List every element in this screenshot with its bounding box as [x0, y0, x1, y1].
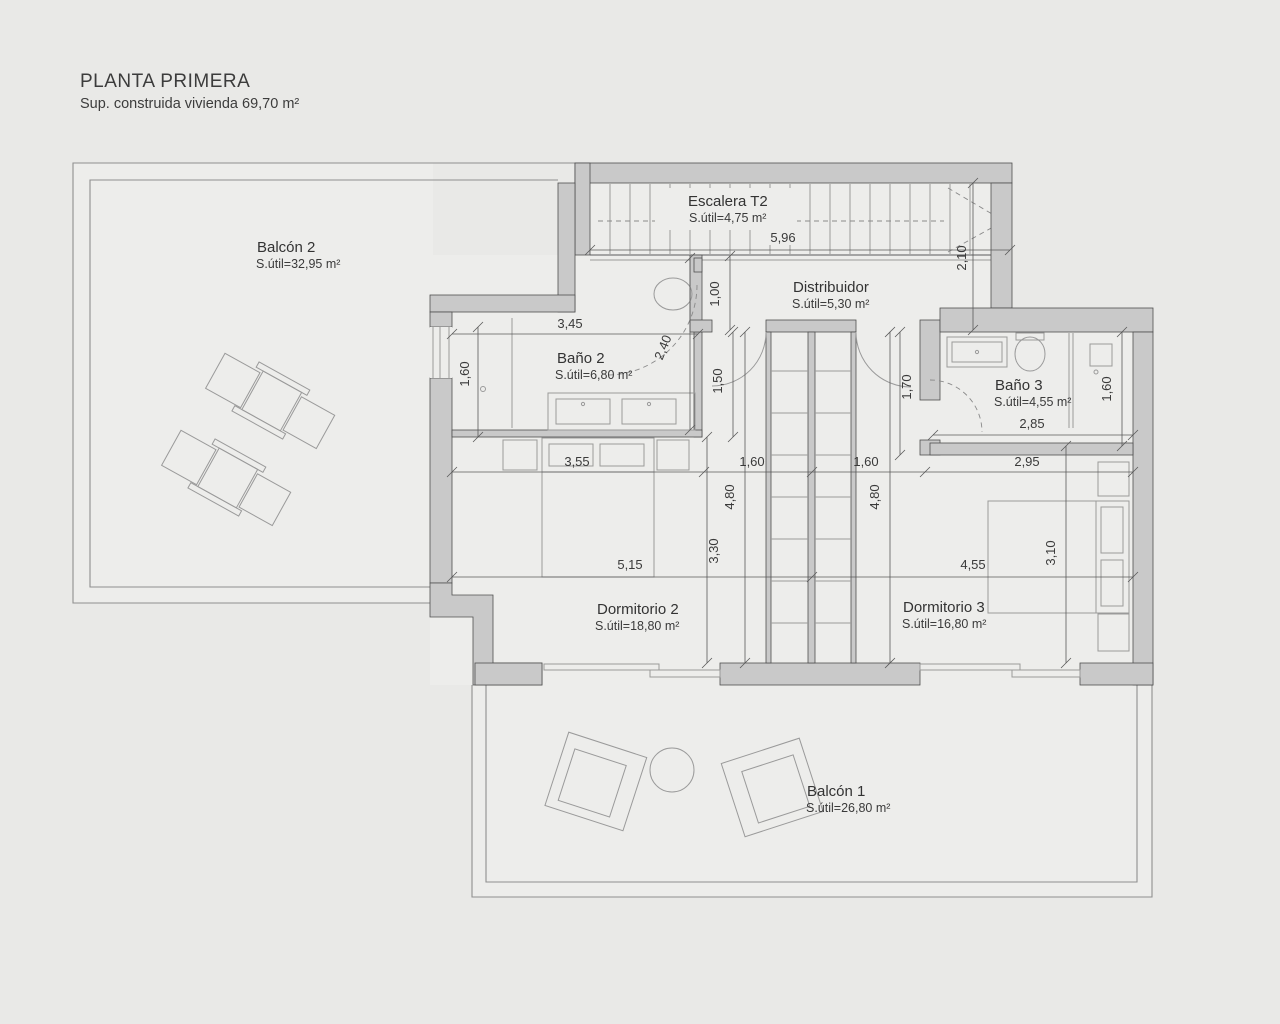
dim-stairs-w: 5,96: [770, 230, 795, 245]
room-area-bano3: S.útil=4,55 m²: [994, 395, 1071, 409]
dim-closet-right: 1,60: [853, 454, 878, 469]
window: [430, 327, 452, 378]
plan-title: PLANTA PRIMERA: [80, 71, 250, 92]
dim-bano3-right: 1,60: [1099, 376, 1114, 401]
dim-dorm2-h: 4,80: [722, 484, 737, 509]
dim-dorm2-w: 5,15: [617, 557, 642, 572]
dim-dorm3-bed: 3,10: [1043, 540, 1058, 565]
room-area-balcon1: S.útil=26,80 m²: [806, 801, 890, 815]
dim-vestibule3: 1,70: [899, 374, 914, 399]
room-label-dormitorio3: Dormitorio 3: [903, 599, 985, 616]
room-area-bano2: S.útil=6,80 m²: [555, 368, 632, 382]
room-area-distribuidor: S.útil=5,30 m²: [792, 297, 869, 311]
dim-dorm3-h: 4,80: [867, 484, 882, 509]
room-label-escalera: Escalera T2: [688, 193, 768, 210]
dim-dorm2-lower: 3,30: [706, 538, 721, 563]
dim-bano2-w: 3,45: [557, 316, 582, 331]
room-label-balcon2: Balcón 2: [257, 239, 315, 256]
dim-vestibule2: 1,50: [710, 368, 725, 393]
dim-hall-right: 2,10: [954, 245, 969, 270]
room-area-balcon2: S.útil=32,95 m²: [256, 257, 340, 271]
dim-hall-left: 1,00: [707, 281, 722, 306]
room-label-bano2: Baño 2: [557, 350, 605, 367]
title-block: PLANTA PRIMERA Sup. construida vivienda …: [80, 71, 299, 112]
room-area-dormitorio2: S.útil=18,80 m²: [595, 619, 679, 633]
room-label-distribuidor: Distribuidor: [793, 279, 869, 296]
room-area-escalera: S.útil=4,75 m²: [689, 211, 766, 225]
room-label-dormitorio2: Dormitorio 2: [597, 601, 679, 618]
dim-bano3-w: 2,85: [1019, 416, 1044, 431]
dim-closet-left: 1,60: [739, 454, 764, 469]
room-label-bano3: Baño 3: [995, 377, 1043, 394]
plan-subtitle: Sup. construida vivienda 69,70 m²: [80, 96, 299, 112]
dim-bano2-left: 1,60: [457, 361, 472, 386]
floor-plan-page: 5,96 2,10 1,00 3,45 1,60 2,40 1,50 1,70 …: [0, 0, 1280, 1024]
dim-dorm3-w: 4,55: [960, 557, 985, 572]
room-area-dormitorio3: S.útil=16,80 m²: [902, 617, 986, 631]
dim-dorm3-top: 2,95: [1014, 454, 1039, 469]
dim-dorm2-top: 3,55: [564, 454, 589, 469]
room-label-balcon1: Balcón 1: [807, 783, 865, 800]
floor-plan-drawing: 5,96 2,10 1,00 3,45 1,60 2,40 1,50 1,70 …: [0, 0, 1280, 1024]
